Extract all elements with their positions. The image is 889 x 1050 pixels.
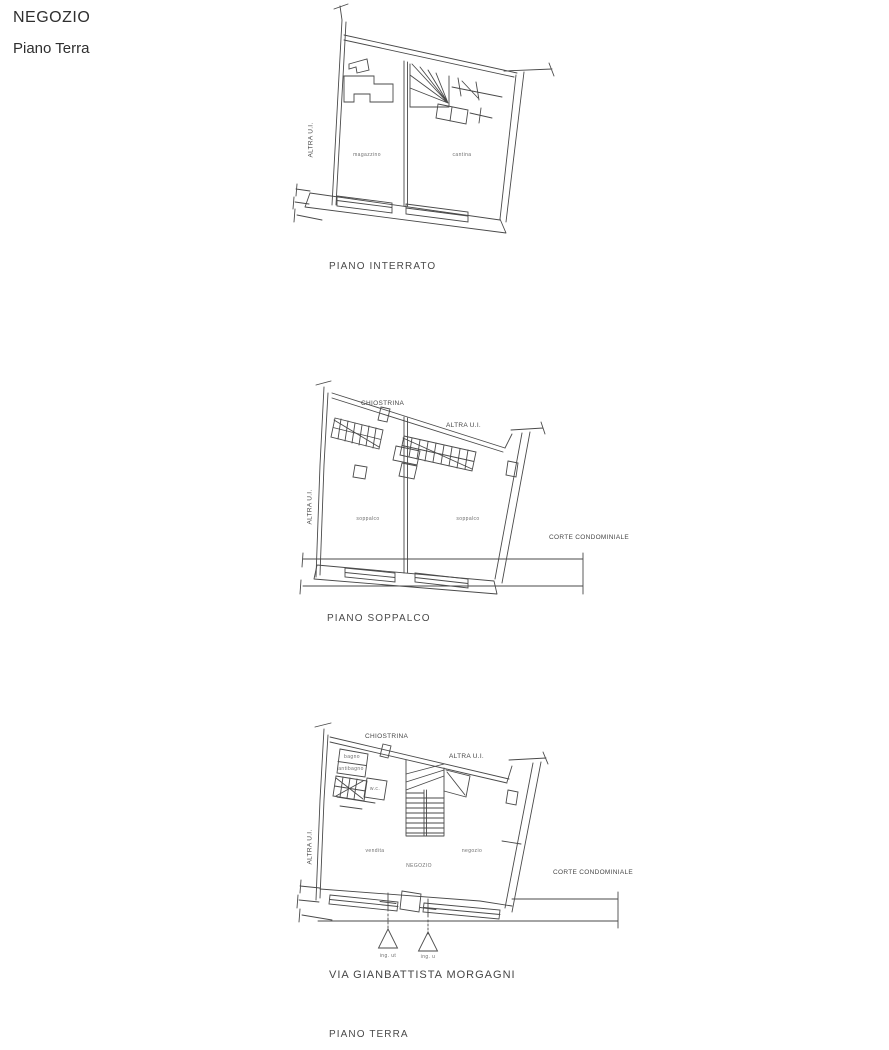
altra-ui-label: ALTRA U.I. [307,489,314,524]
room-label: soppalco [356,516,379,522]
street-label: VIA GIANBATTISTA MORGAGNI [329,969,516,981]
plan-caption-soppalco: PIANO SOPPALCO [327,613,431,624]
entrance-triangle-icon [379,929,398,948]
stair-icon [331,418,383,449]
window-opening [406,204,468,222]
stair-icon [393,436,476,479]
entrance-triangle-icon [419,932,438,951]
floor-plan-sheet: NEGOZIO Piano Terra [0,0,889,1050]
plan-interrato-drawing [293,4,554,233]
corte-condominiale-label: CORTE CONDOMINIALE [549,534,629,541]
altra-ui-label: ALTRA U.I. [449,753,484,760]
entrance-step [400,891,421,912]
stair-icon [410,64,449,107]
entrance-label: ing. ut [380,953,396,959]
room-label: NEGOZIO [406,863,432,869]
entrance-label: ing. u [421,954,436,960]
floor-plans-drawing [0,0,889,1050]
room-label: negozio [462,848,482,854]
plan-soppalco-drawing [300,381,583,594]
room-label: antibagno [338,766,364,772]
room-label: w.c. [370,786,380,792]
altra-ui-label: ALTRA U.I. [446,422,481,429]
window-opening [337,196,392,213]
room-label: cantina [453,152,472,158]
room-label: magazzino [353,152,381,158]
room-label: vendita [366,848,385,854]
room-label: bagno [344,754,360,760]
window-opening [423,903,500,919]
plan-caption-terra: PIANO TERRA [329,1029,409,1040]
altra-ui-label: ALTRA U.I. [308,122,315,157]
chiostrina-label: CHIOSTRINA [361,400,404,407]
room-label: soppalco [456,516,479,522]
stair-icon [406,760,444,836]
window-opening [345,568,395,582]
corte-condominiale-label: CORTE CONDOMINIALE [553,869,633,876]
altra-ui-label: ALTRA U.I. [307,829,314,864]
plan-caption-interrato: PIANO INTERRATO [329,261,436,272]
chiostrina-label: CHIOSTRINA [365,733,408,740]
